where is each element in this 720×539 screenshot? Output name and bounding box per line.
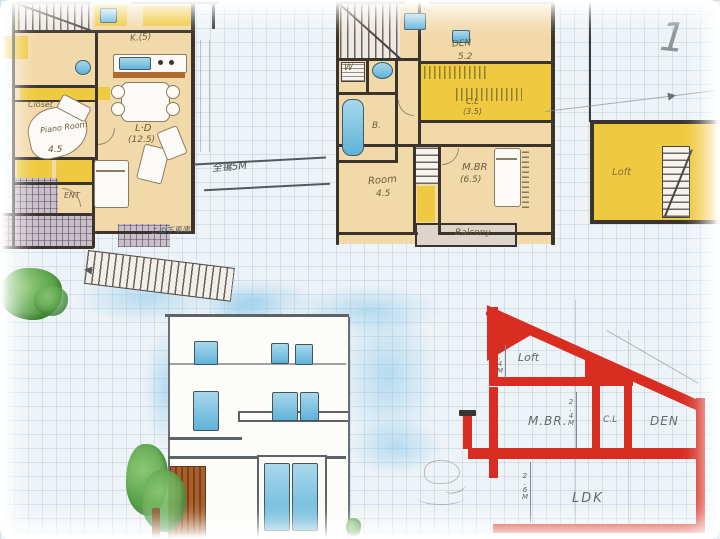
plan2-mbr-label: M.BR: [462, 163, 488, 173]
window: [193, 391, 219, 431]
plan1-ld-size: (12.5): [128, 136, 155, 145]
section-left-wall: [489, 387, 498, 449]
floor-line: [168, 437, 242, 440]
section-right-wall: [696, 398, 705, 532]
section-closet-label: C.L: [603, 416, 617, 425]
bed: [94, 160, 129, 208]
stove-burner-icon: [169, 60, 174, 65]
bed-pillow-line: [96, 170, 125, 172]
wall: [212, 1, 215, 29]
wall: [366, 58, 369, 94]
chair: [111, 102, 125, 116]
wall: [438, 144, 441, 235]
wall: [12, 2, 15, 248]
wall: [590, 220, 720, 224]
plan2-mbr-size: (6.5): [460, 176, 481, 185]
wall: [12, 1, 92, 4]
section-main-floor: [468, 448, 704, 459]
plan1-piano-size: 4.5: [48, 146, 62, 155]
wall: [2, 213, 92, 216]
bathtub-icon: [342, 99, 364, 156]
wall: [336, 144, 555, 147]
sink-icon: [75, 60, 91, 75]
plan1-closet-label: Closet: [28, 101, 53, 109]
counter-front: [113, 72, 185, 78]
stove-burner-icon: [158, 60, 163, 65]
window: [264, 463, 290, 531]
wardrobe-hatch: [424, 66, 486, 79]
section-left-wall: [489, 459, 498, 478]
plan1-storage: [3, 36, 28, 59]
plan2-closet-size: (3.5): [463, 108, 482, 116]
wall: [551, 2, 555, 245]
wall: [395, 58, 398, 163]
kitchen-sink-icon: [119, 57, 151, 70]
plan1-ent-label: ENT: [64, 192, 80, 200]
wall: [12, 182, 95, 185]
dim-line: [530, 462, 531, 522]
chair: [166, 102, 180, 116]
window: [194, 341, 218, 365]
stair-direction-arrow: [83, 265, 92, 274]
plan2-den-label: DEN: [452, 39, 472, 49]
wall: [419, 120, 555, 123]
wall: [12, 100, 98, 102]
section-loft-floor: [489, 377, 601, 386]
loft-plan-label: Loft: [612, 168, 631, 178]
plan2-closet-label: C.L: [466, 98, 479, 106]
wall: [336, 160, 398, 163]
pencil-scribble: [424, 460, 460, 484]
wardrobe-hatch: [522, 148, 529, 208]
wall: [130, 1, 218, 4]
plan2-den-size: 5.2: [458, 53, 472, 62]
parapet-line: [165, 314, 349, 317]
chair: [166, 85, 180, 99]
dim-line: [505, 345, 506, 378]
section-ldk-label: LDK: [572, 492, 604, 505]
section-mbr-height: 2.4M: [567, 398, 574, 426]
plan2-laundry-label: W: [344, 64, 353, 73]
section-ldk-height: 2.6M: [521, 472, 528, 500]
section-den-label: DEN: [650, 415, 679, 427]
window: [271, 343, 289, 364]
plan1-storage: [143, 6, 193, 26]
wall: [430, 1, 555, 4]
bush: [34, 286, 68, 316]
dining-table: [121, 82, 170, 122]
wall: [12, 30, 195, 33]
wall: [336, 2, 339, 245]
wall: [413, 144, 416, 235]
bed-pillow-line: [496, 158, 517, 160]
plan2-room-size: 4.5: [376, 190, 390, 199]
section-flue-cap: [459, 410, 476, 416]
section-loft-label: Loft: [518, 352, 539, 363]
plan2-bath-label: B.: [372, 122, 381, 131]
pencil-guide: [589, 2, 591, 122]
plan1-ld-label: L·D: [135, 124, 151, 134]
plan1-garage-hatch: [2, 215, 92, 248]
wall: [191, 2, 195, 234]
plan1-storage: [56, 160, 92, 182]
architect-sketch-page: K.(5) L·D (12.5) Closet Piano Room 4.5 E…: [0, 0, 720, 539]
tree-trunk: [152, 508, 160, 538]
window: [295, 344, 313, 365]
toilet-sink-icon: [404, 13, 426, 30]
balcony-ledge-end: [238, 411, 240, 422]
plan2-mid-stair: [415, 147, 438, 184]
slope-arrow: [667, 91, 676, 100]
section-partition: [624, 375, 632, 449]
wall: [336, 232, 418, 235]
dim-line: [576, 392, 577, 448]
sprout: [346, 518, 361, 536]
section-partition: [592, 381, 600, 449]
wall: [419, 61, 555, 64]
pencil-scribble: [418, 492, 464, 505]
wall: [590, 120, 720, 124]
wall: [12, 85, 98, 88]
sink-icon: [100, 8, 117, 23]
wall: [336, 92, 398, 95]
section-loft-height: 1.4M: [496, 346, 503, 374]
window: [292, 463, 318, 531]
section-flue: [463, 415, 472, 449]
plan2-storage: [417, 186, 435, 222]
chair: [111, 85, 125, 99]
loft-north-mark: 1: [658, 17, 687, 59]
tree-foliage: [142, 470, 186, 532]
pencil-guide: [200, 40, 201, 152]
plan2-balcony-label: Balcony: [455, 229, 491, 238]
wall: [336, 1, 406, 4]
wall: [2, 246, 94, 249]
wall: [590, 120, 594, 224]
washbasin-icon: [372, 62, 393, 79]
bed: [494, 148, 521, 207]
section-mbr-label: M.BR.: [528, 415, 568, 427]
section-ground-line: [493, 524, 704, 533]
window: [300, 392, 319, 421]
pencil-guide: [209, 40, 210, 152]
wall: [336, 58, 421, 61]
window: [272, 392, 298, 421]
